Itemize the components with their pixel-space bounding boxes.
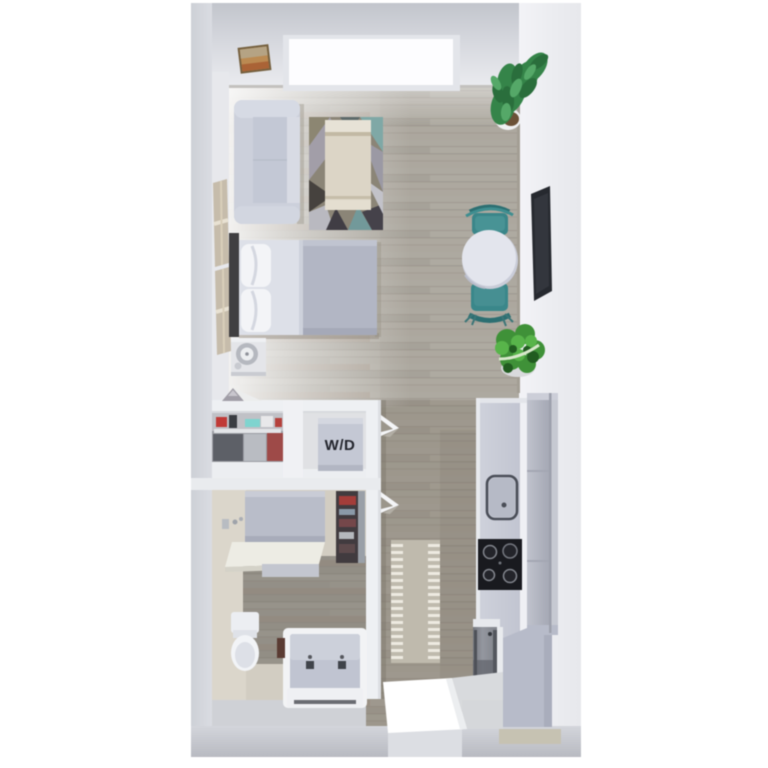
- svg-text:W/D: W/D: [325, 437, 356, 454]
